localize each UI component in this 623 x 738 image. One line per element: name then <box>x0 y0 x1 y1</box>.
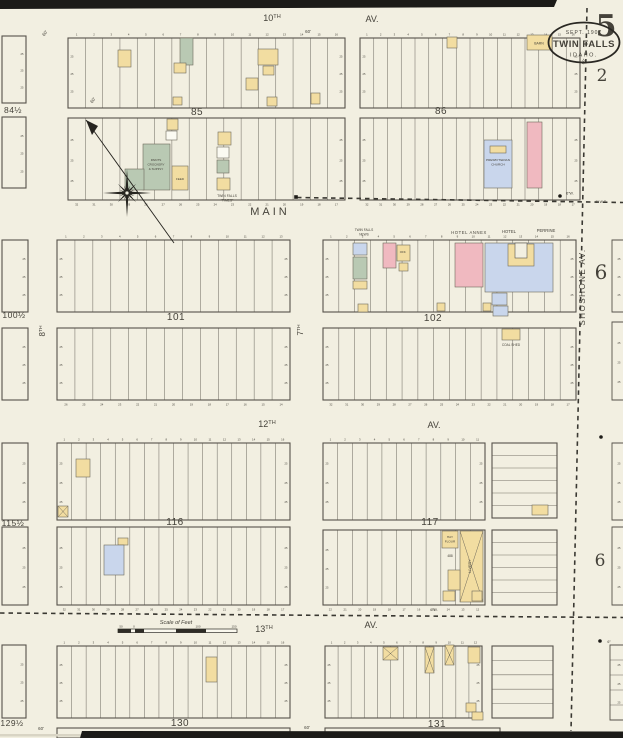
building-special <box>180 38 193 65</box>
map-annotation: 60' <box>304 725 310 730</box>
lot-number: 26 <box>64 403 68 407</box>
lot-number: 11 <box>461 641 464 645</box>
lot-number: 16 <box>417 608 421 612</box>
lot-number: 32 <box>365 203 369 207</box>
lot-number: 30 <box>393 203 397 207</box>
lot-number: 27 <box>136 608 140 612</box>
lot-number: 29 <box>106 608 110 612</box>
building-frame <box>472 712 483 720</box>
lot-number: 31 <box>379 203 383 207</box>
lot-number: 31 <box>77 608 81 612</box>
lot-number: 11 <box>248 33 251 37</box>
adjacent-sheet-top: 2 <box>597 66 608 86</box>
lot-number: 23 <box>489 203 493 207</box>
lot-number: 22 <box>503 203 507 207</box>
block-number: 130 <box>171 718 189 729</box>
lot-number: 10 <box>194 641 198 645</box>
scale-bar <box>118 629 237 633</box>
lot-number: 24 <box>179 608 183 612</box>
lot-number: 29 <box>407 203 411 207</box>
map-annotation: 60' <box>38 726 44 731</box>
lot-number: 14 <box>300 33 304 37</box>
building-frame <box>267 97 277 106</box>
block-number: 100½ <box>2 310 25 320</box>
lot-number: 25 <box>196 203 200 207</box>
map-annotation: 6″W. <box>566 192 573 196</box>
building <box>502 329 520 340</box>
building <box>174 63 186 73</box>
lot-number: 13 <box>519 235 523 239</box>
lot-number: 17 <box>567 403 571 407</box>
scan-edge-shadow-bottom-left <box>0 734 82 737</box>
lot-number: 17 <box>402 608 406 612</box>
compass-hub <box>125 191 129 195</box>
lot-number: 20 <box>358 608 362 612</box>
building-special <box>217 160 229 173</box>
building-white <box>166 131 177 140</box>
building <box>445 645 454 665</box>
lot-number: 14 <box>447 608 451 612</box>
lot-number: 10 <box>448 641 452 645</box>
lot-number: 18 <box>317 203 321 207</box>
adjacent-sheet-right-upper: 6 <box>595 260 608 284</box>
lot-number: 23 <box>118 403 122 407</box>
lot-number: 15 <box>267 438 271 442</box>
map-annotation: TWIN FALLS <box>217 194 238 198</box>
building <box>311 93 320 104</box>
map-annotation: 60' <box>305 29 311 34</box>
building-frame <box>448 570 460 590</box>
lot-number: 24 <box>456 403 460 407</box>
lot-number: 32 <box>75 203 79 207</box>
street-label: MAIN <box>250 206 290 218</box>
lot-number: 23 <box>194 608 198 612</box>
lot-number: 24 <box>100 403 104 407</box>
stamp-state: IDAHO. <box>570 53 598 59</box>
building-frame <box>173 97 182 105</box>
lot-number: 10 <box>231 33 235 37</box>
building-white <box>217 147 229 158</box>
building <box>166 131 177 140</box>
building <box>246 78 258 90</box>
lot-number: 31 <box>345 403 349 407</box>
lot-number: 30 <box>361 403 365 407</box>
map-annotation: 50 <box>119 625 123 629</box>
building-brick <box>455 243 483 287</box>
lot-number: 16 <box>244 403 248 407</box>
lot-number: 28 <box>420 203 424 207</box>
lot-number: 28 <box>121 608 125 612</box>
building <box>483 303 491 311</box>
lot-number: 12 <box>517 33 521 37</box>
lot-number: 12 <box>266 33 270 37</box>
map-annotation: COAL SHED <box>502 343 521 347</box>
lot-number: 17 <box>226 403 230 407</box>
lot-number: 29 <box>377 403 381 407</box>
lot-number: 22 <box>487 403 491 407</box>
building <box>425 647 434 673</box>
lot-number: 23 <box>231 203 235 207</box>
lot-number: 15 <box>317 33 321 37</box>
lot-number: 11 <box>208 438 211 442</box>
block-number: 117 <box>421 517 438 528</box>
building-frame <box>217 178 230 190</box>
block-number: 84½ <box>4 105 22 115</box>
lot-number: 18 <box>208 403 212 407</box>
building <box>383 647 398 660</box>
lot-number: 16 <box>335 33 339 37</box>
map-annotation: 6″ W.T. <box>595 200 606 204</box>
lot-number: 14 <box>535 235 539 239</box>
lot-number: 16 <box>567 235 571 239</box>
lot-number: 32 <box>63 608 67 612</box>
map-canvas: 1234567891011121314151625252525252585323… <box>0 0 623 738</box>
map-annotation: CHURCH <box>491 163 504 167</box>
lot-number: 10 <box>489 33 493 37</box>
lot-number: 14 <box>252 641 256 645</box>
building <box>532 505 548 515</box>
map-annotation: PERRINE <box>537 228 556 233</box>
lot-number: 20 <box>172 403 176 407</box>
lot-number: 21 <box>503 403 507 407</box>
building <box>447 37 457 48</box>
lot-number: 25 <box>82 403 86 407</box>
block-number: 101 <box>167 312 185 323</box>
scale-bar-segment <box>176 629 206 633</box>
scan-edge-strip-bottom <box>80 731 623 738</box>
building <box>167 119 178 130</box>
building <box>490 146 506 153</box>
building-frame <box>437 303 445 311</box>
building-frame <box>472 591 482 601</box>
building <box>353 243 367 255</box>
lot-number: 22 <box>208 608 212 612</box>
street-label: SHOSHONE AV. <box>578 248 587 325</box>
map-annotation: 100 <box>195 625 200 629</box>
building-frame <box>443 591 455 601</box>
map-annotation: Scale of Feet <box>160 620 193 626</box>
lot-number: 11 <box>476 438 479 442</box>
lot-number: 18 <box>551 403 555 407</box>
building-frame <box>118 538 128 545</box>
street-label: AV. <box>364 620 377 630</box>
water-main-marker <box>294 195 298 199</box>
building <box>217 178 230 190</box>
building-stone <box>104 545 124 575</box>
lot-number: 10 <box>461 438 465 442</box>
lot-number: 13 <box>237 438 241 442</box>
building <box>58 506 68 517</box>
map-annotation: “TIMES” <box>221 199 234 203</box>
building <box>493 306 508 316</box>
building-frame <box>218 132 231 145</box>
map-annotation: HOTEL ANNEX <box>451 230 487 235</box>
building <box>118 538 128 545</box>
map-annotation: & SUPPLY <box>149 167 163 171</box>
lot-number: 10 <box>226 235 230 239</box>
lot-number: 23 <box>472 403 476 407</box>
lot-number: 28 <box>393 403 397 407</box>
lot-number: 25 <box>440 403 444 407</box>
building <box>443 591 455 601</box>
building <box>118 50 131 67</box>
building-frame <box>532 505 548 515</box>
building-frame <box>358 304 368 312</box>
building <box>472 712 483 720</box>
lot-number: 21 <box>344 608 348 612</box>
lot-number: 24 <box>475 203 479 207</box>
building-frame <box>246 78 258 90</box>
scale-bar-segment <box>135 629 144 633</box>
building <box>263 66 274 75</box>
building-frame <box>447 37 457 48</box>
lot-number: 22 <box>136 403 140 407</box>
map-annotation: NEWS <box>359 233 369 237</box>
lot-number: 32 <box>329 403 333 407</box>
building <box>353 257 367 279</box>
map-annotation: FEED <box>176 177 185 181</box>
building <box>455 243 483 287</box>
lot-number: 10 <box>472 235 476 239</box>
building <box>217 147 229 158</box>
building-brick <box>383 243 396 268</box>
lot-number: 19 <box>535 403 539 407</box>
lot-number: 17 <box>572 203 576 207</box>
map-annotation: PRESBYTERIAN <box>486 158 510 162</box>
lot-number: 18 <box>558 203 562 207</box>
building-special <box>353 257 367 279</box>
lot-number: 13 <box>279 235 283 239</box>
map-annotation: PAINTS <box>151 158 162 162</box>
building <box>104 545 124 575</box>
map-annotation: CROCKERY <box>148 163 165 167</box>
lot-number: 20 <box>519 403 523 407</box>
block-number: 102 <box>424 313 442 324</box>
lot-number: 15 <box>558 33 562 37</box>
lot-number: 20 <box>530 203 534 207</box>
map-annotation: 488 <box>447 554 453 558</box>
building-frame <box>311 93 320 104</box>
lot-number: 31 <box>92 203 96 207</box>
lot-number: 19 <box>252 608 256 612</box>
building-paperfill <box>515 243 527 258</box>
map-annotation: 150 <box>231 625 236 629</box>
map-annotation: HOTEL <box>502 229 517 234</box>
block-number: 85 <box>191 107 203 118</box>
building-frame <box>258 49 278 65</box>
building-frame <box>206 657 217 682</box>
lot-number: 26 <box>150 608 154 612</box>
building-stone <box>353 243 367 255</box>
lot-number: 26 <box>179 203 183 207</box>
building <box>448 570 460 590</box>
lot-number: 25 <box>165 608 169 612</box>
building <box>180 38 193 65</box>
building-brick <box>527 122 542 188</box>
lot-number: 12 <box>503 235 507 239</box>
lot-number: 12 <box>262 235 266 239</box>
building-stone <box>493 306 508 316</box>
water-main-marker <box>558 194 562 198</box>
building-frame <box>466 703 476 712</box>
lot-number: 13 <box>283 33 287 37</box>
map-annotation: BARN <box>534 42 544 46</box>
lot-number: 17 <box>335 203 339 207</box>
building-frame <box>399 263 408 271</box>
street-label: AV. <box>427 420 440 430</box>
building <box>218 132 231 145</box>
lot-number: 15 <box>262 403 266 407</box>
building <box>76 459 90 477</box>
lot-number: 13 <box>237 641 241 645</box>
lot-number: 25 <box>462 203 466 207</box>
lot-number: 21 <box>154 403 158 407</box>
building <box>399 263 408 271</box>
map-annotation: 6″W. <box>430 608 437 612</box>
building <box>466 703 476 712</box>
map-annotation: TWIN FALLS <box>355 228 374 232</box>
lot-number: 11 <box>208 641 211 645</box>
lot-number: 18 <box>267 608 271 612</box>
block-number: 129½ <box>0 718 23 728</box>
building <box>267 97 277 106</box>
lot-number: 30 <box>110 203 114 207</box>
map-annotation: OFF. <box>400 250 407 254</box>
building <box>468 647 480 663</box>
building-frame <box>167 119 178 130</box>
lot-number: 13 <box>461 608 465 612</box>
lot-number: 30 <box>92 608 96 612</box>
lot-number: 27 <box>408 403 412 407</box>
stamp-city: TWIN FALLS <box>553 39 615 50</box>
lot-number: 16 <box>281 438 285 442</box>
sanborn-map-sheet: 1234567891011121314151625252525252585323… <box>0 0 623 738</box>
building <box>353 281 367 289</box>
lot-number: 27 <box>162 203 166 207</box>
building <box>515 243 527 258</box>
block-number: 86 <box>435 106 447 117</box>
lot-number: 12 <box>223 438 227 442</box>
lot-number: 11 <box>488 235 491 239</box>
adjacent-sheet-right-lower: 6 <box>595 551 606 571</box>
lot-number: 19 <box>544 203 548 207</box>
building-frame <box>490 146 506 153</box>
block-number: 116 <box>166 517 183 528</box>
building-frame <box>502 329 520 340</box>
water-main-marker <box>598 639 602 643</box>
lot-number: 17 <box>281 608 285 612</box>
building-frame <box>468 647 480 663</box>
building <box>206 657 217 682</box>
stamp-date: SEPT. 1907 <box>566 30 602 36</box>
building <box>173 97 182 105</box>
map-annotation: FLOUR <box>445 540 456 544</box>
lot-number: 14 <box>252 438 256 442</box>
lot-number: 16 <box>281 641 285 645</box>
building-frame <box>263 66 274 75</box>
building <box>472 591 482 601</box>
building <box>437 303 445 311</box>
building-frame <box>76 459 90 477</box>
lot-number: 15 <box>551 235 555 239</box>
building <box>383 243 396 268</box>
lot-number: 27 <box>434 203 438 207</box>
lot-number: 12 <box>476 608 480 612</box>
lot-number: 11 <box>503 33 506 37</box>
building-frame <box>118 50 131 67</box>
scale-bar-segment <box>118 629 131 633</box>
lot-number: 26 <box>448 203 452 207</box>
building-frame <box>174 63 186 73</box>
lot-number: 11 <box>244 235 247 239</box>
lot-number: 26 <box>424 403 428 407</box>
map-annotation: HAY <box>447 535 453 539</box>
water-main-marker <box>599 435 603 439</box>
street-label: AV. <box>365 14 378 24</box>
building <box>358 304 368 312</box>
lot-number: 12 <box>474 641 478 645</box>
lot-number: 10 <box>194 438 198 442</box>
paper-background <box>0 0 623 738</box>
lot-number: 20 <box>237 608 241 612</box>
building-frame <box>353 281 367 289</box>
building <box>492 293 507 305</box>
lot-number: 19 <box>190 403 194 407</box>
building-frame <box>483 303 491 311</box>
map-annotation: LIVERY <box>468 559 472 573</box>
lot-number: 14 <box>279 403 283 407</box>
lot-number: 21 <box>517 203 521 207</box>
lot-number: 21 <box>223 608 227 612</box>
building-stone <box>492 293 507 305</box>
building <box>217 160 229 173</box>
lot-number: 12 <box>223 641 227 645</box>
lot-number: 19 <box>373 608 377 612</box>
building <box>527 122 542 188</box>
building <box>258 49 278 65</box>
lot-number: 22 <box>329 608 333 612</box>
lot-number: 18 <box>388 608 392 612</box>
lot-number: 24 <box>214 203 218 207</box>
lot-number: 15 <box>267 641 271 645</box>
lot-number: 19 <box>300 203 304 207</box>
